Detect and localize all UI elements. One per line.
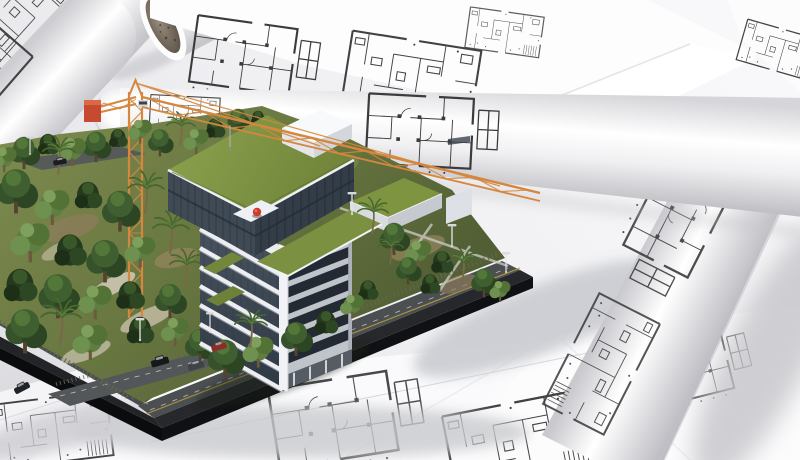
crane-cab-window — [139, 102, 147, 105]
scene-canvas — [0, 0, 800, 460]
crane-hook — [229, 148, 232, 151]
architectural-model-photo — [0, 0, 800, 460]
red-rooftop-object — [253, 208, 261, 216]
